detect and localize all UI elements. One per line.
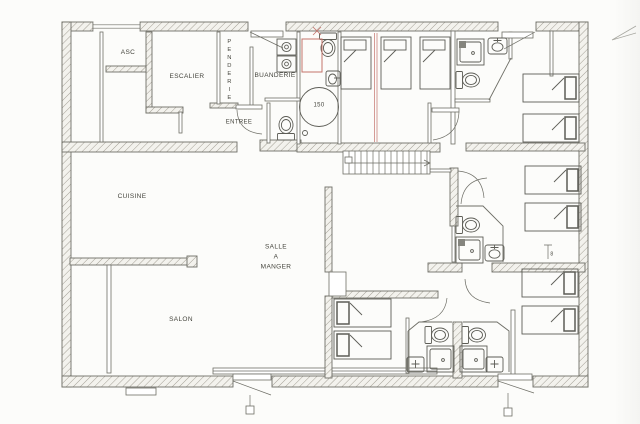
room-label-salon: SALON <box>169 315 193 325</box>
elevator-door <box>106 66 146 72</box>
exterior-door-bottom-right <box>498 374 534 416</box>
water-heater-capacity: 150 <box>313 102 324 111</box>
bed-icon <box>334 299 391 327</box>
sink-icon <box>486 357 503 372</box>
bed-icon <box>334 331 391 359</box>
bed-icon <box>522 306 578 334</box>
floor-plan-drawing <box>0 0 640 424</box>
washing-machine-icon <box>277 56 296 72</box>
sink-icon <box>488 38 507 54</box>
window-top-left <box>93 22 140 31</box>
scan-artifact <box>612 26 636 40</box>
wall-marker-label: 8 <box>550 251 553 259</box>
bed-icon <box>341 37 371 89</box>
toilet-icon <box>278 117 295 141</box>
washing-machine-icon <box>277 39 296 55</box>
bed-icon <box>525 166 581 194</box>
bed-icon <box>420 37 450 89</box>
toilet-icon <box>456 72 480 89</box>
floor-drain-icon <box>303 131 308 136</box>
terrace-door-top <box>250 31 283 48</box>
toilet-icon <box>425 327 449 344</box>
room-label-escalier: ESCALIER <box>170 72 205 82</box>
toilet-icon <box>456 217 480 234</box>
staircase-icon <box>343 151 430 174</box>
interior-walls <box>62 32 585 378</box>
fixtures <box>277 33 581 372</box>
toilet-icon <box>462 327 486 344</box>
window-sill <box>126 388 156 395</box>
bed-icon <box>523 114 579 142</box>
red-partition-line <box>375 33 378 142</box>
door-swing <box>458 171 484 198</box>
bed-icon <box>522 269 578 297</box>
room-label-entree: ENTREE <box>226 119 252 128</box>
room-label-asc: ASC <box>121 48 135 58</box>
room-label-buanderie: BUANDERIE <box>254 71 295 81</box>
floor-plan-page: ASC ESCALIER PENDERIE BUANDERIE ENTREE 1… <box>0 0 640 424</box>
pocket-door <box>329 272 346 296</box>
red-shower-outline <box>302 39 322 72</box>
sink-icon <box>485 245 504 261</box>
exterior-door-bottom-left <box>233 374 271 414</box>
room-label-cuisine: CUISINE <box>118 192 147 202</box>
room-label-salle-a-manger: SALLE A MANGER <box>261 242 292 271</box>
bed-icon <box>525 203 581 231</box>
bed-icon <box>523 74 579 102</box>
door-swing <box>465 279 490 303</box>
door-swing <box>421 298 447 322</box>
bed-icon <box>381 37 411 89</box>
shower-icon <box>460 346 487 372</box>
room-label-penderie: PENDERIE <box>225 39 234 103</box>
